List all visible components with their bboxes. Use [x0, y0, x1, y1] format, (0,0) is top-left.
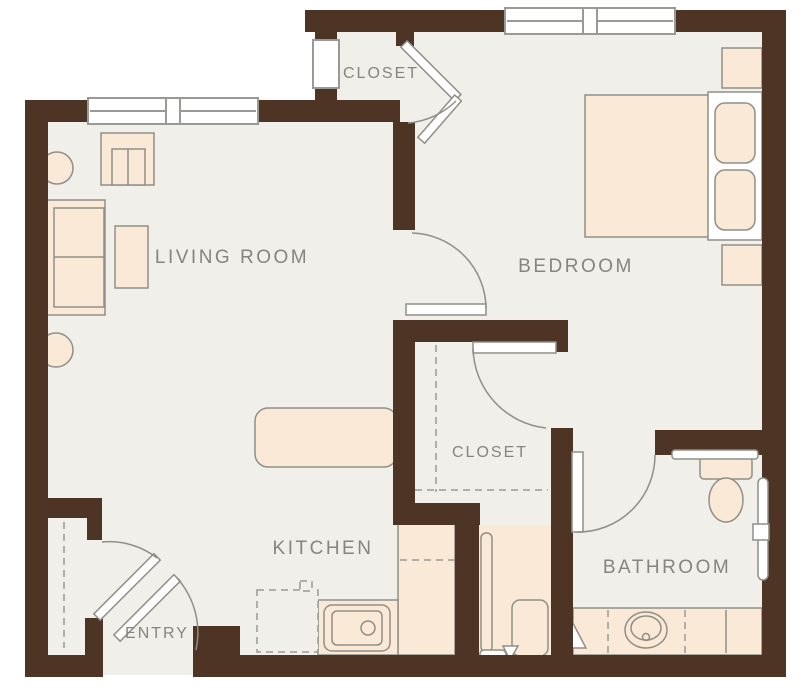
- wall-entry-stub-upper: [87, 518, 102, 540]
- pillow: [715, 103, 755, 163]
- utility-shelf: [481, 533, 492, 652]
- floor-plan: CLOSET LIVING ROOM BEDROOM CLOSET KITCHE…: [0, 0, 807, 696]
- wall-closet-middle-bottom: [393, 503, 480, 525]
- label-living-room: LIVING ROOM: [155, 247, 309, 269]
- floor-plan-drawing: [0, 0, 807, 696]
- bed-mattress: [585, 95, 710, 237]
- armchair: [115, 226, 148, 288]
- grab-bar: [672, 450, 758, 459]
- label-closet-middle: CLOSET: [452, 444, 528, 462]
- toilet-bowl: [709, 478, 743, 522]
- wall-left: [25, 100, 48, 677]
- closet-middle-door-leaf: [473, 342, 556, 353]
- label-closet-top: CLOSET: [343, 65, 419, 83]
- label-bathroom: BATHROOM: [603, 557, 731, 579]
- wall-utility-left: [455, 523, 479, 655]
- label-entry: ENTRY: [125, 625, 189, 643]
- kitchen-peninsula: [255, 408, 397, 467]
- nightstand: [722, 48, 762, 88]
- label-bedroom: BEDROOM: [518, 256, 634, 278]
- window-mullion: [166, 98, 180, 124]
- wall-central: [393, 320, 568, 342]
- label-kitchen: KITCHEN: [273, 538, 374, 560]
- wall-living-bedroom-divider: [393, 122, 415, 230]
- dishwasher: [257, 590, 318, 652]
- closet-window: [313, 40, 339, 88]
- nightstand: [722, 245, 762, 285]
- dishwasher-notch: [300, 581, 312, 591]
- bedroom-door-leaf: [406, 304, 486, 315]
- pillow: [715, 170, 755, 230]
- wall-entry-closet-top: [25, 498, 102, 518]
- wall-entry-jamb: [193, 626, 240, 655]
- wall-entry-stub-lower: [85, 618, 103, 655]
- window-mullion: [583, 8, 597, 34]
- toilet-tank: [700, 457, 752, 479]
- wall-closet-middle-left: [393, 320, 415, 525]
- wall-bottom-right: [193, 655, 786, 677]
- towel-bar-bracket: [753, 524, 769, 540]
- entry-recess-floor: [103, 650, 193, 675]
- kitchen-counter-vertical: [398, 523, 455, 655]
- wall-bathroom-left: [551, 428, 573, 655]
- bathroom-door-leaf: [572, 452, 583, 532]
